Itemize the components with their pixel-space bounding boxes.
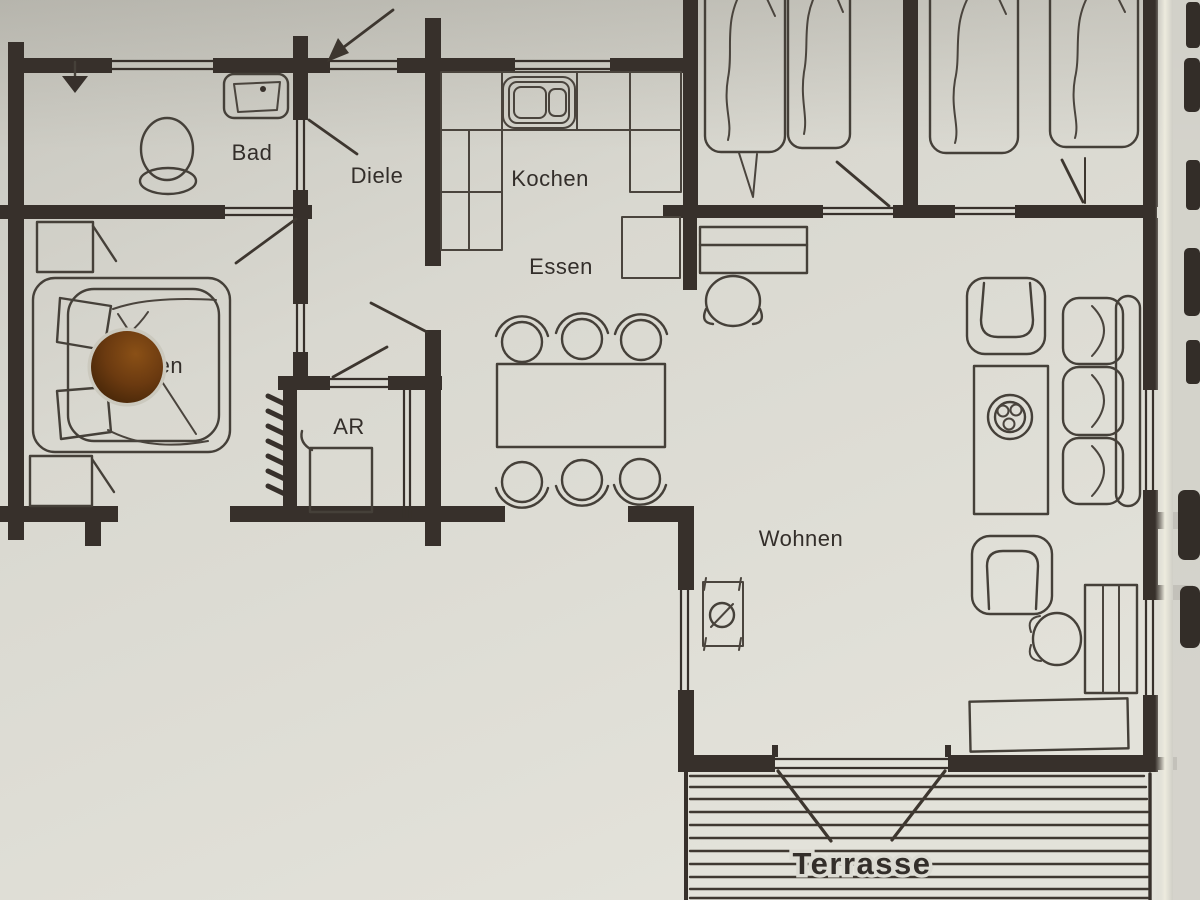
floor-plan-drawing: Bad Diele Kochen Essen fen AR Wohnen Ter… (0, 0, 1200, 900)
sink-faucet (260, 86, 266, 92)
room-label-bad: Bad (232, 140, 273, 165)
room-label-wohnen: Wohnen (759, 526, 844, 551)
page-fold-highlight (1155, 0, 1173, 900)
room-label-diele: Diele (351, 163, 404, 188)
room-label-kochen: Kochen (511, 166, 589, 191)
room-label-terrasse: Terrasse (793, 846, 932, 881)
room-label-essen: Essen (529, 254, 593, 279)
top-shadow (0, 0, 1200, 150)
page-edge (1173, 0, 1200, 900)
floor-plan-photo: Bad Diele Kochen Essen fen AR Wohnen Ter… (0, 0, 1200, 900)
hole-punch-hole (91, 331, 163, 403)
room-label-ar: AR (333, 414, 365, 439)
